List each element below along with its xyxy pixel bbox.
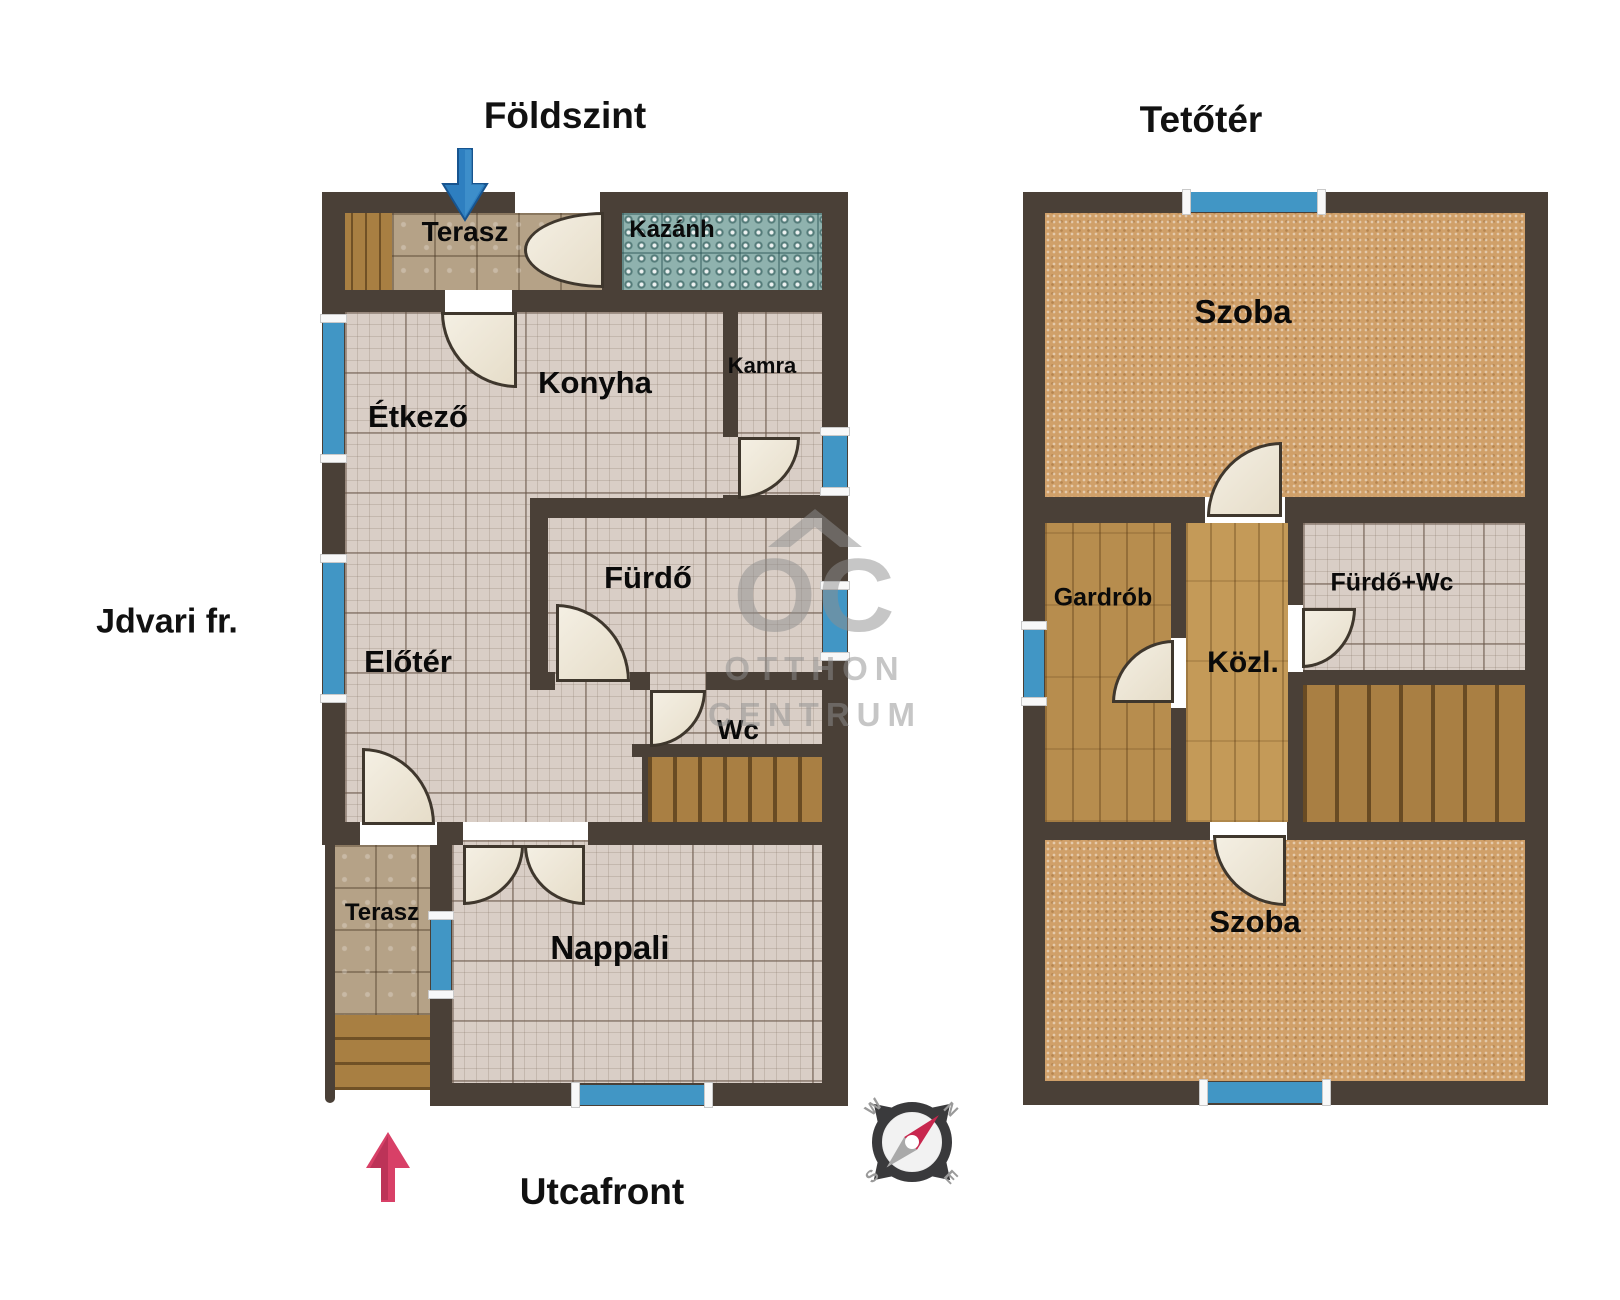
window [823, 433, 847, 490]
ground-staircase [642, 757, 822, 822]
window [1205, 1082, 1325, 1103]
street-front-label: Utcafront [520, 1171, 684, 1213]
wall [437, 822, 463, 845]
room-label-gardrob: Gardrób [1054, 584, 1153, 613]
room-label-nappali: Nappali [550, 929, 669, 967]
attic-room-top-floor [1045, 213, 1525, 497]
wall [1285, 497, 1525, 523]
window [1024, 627, 1044, 700]
ground-floor-title: Földszint [484, 95, 646, 137]
room-label-kamra: Kamra [728, 353, 796, 379]
wall [530, 672, 555, 690]
wall [322, 290, 445, 312]
room-label-kozl: Közl. [1207, 646, 1279, 680]
attic-title: Tetőtér [1140, 99, 1263, 141]
wall [530, 498, 548, 690]
room-label-konyha: Konyha [538, 365, 652, 401]
ground-terrace-bottom-floor [333, 845, 430, 1015]
window [1188, 192, 1320, 212]
wall [1171, 523, 1186, 638]
room-label-terasz-bottom: Terasz [345, 899, 419, 927]
wall [1171, 708, 1186, 822]
compass-rose: W N S E [852, 1082, 972, 1202]
attic-staircase [1303, 685, 1525, 822]
room-label-eloter: Előtér [364, 644, 452, 680]
wall [706, 672, 822, 690]
wall [1045, 822, 1210, 840]
room-label-etkezo: Étkező [368, 399, 468, 435]
wall [600, 192, 848, 213]
window [431, 917, 451, 993]
room-label-wc: Wc [717, 714, 759, 746]
room-label-furdo: Fürdő [604, 560, 692, 596]
wall [1045, 497, 1205, 523]
wall [588, 822, 822, 845]
street-arrow-icon [364, 1132, 412, 1204]
entrance-arrow-icon [441, 148, 491, 222]
room-label-szoba-bottom: Szoba [1209, 904, 1300, 940]
wall [630, 672, 650, 690]
window [323, 320, 344, 457]
courtyard-front-label: Jdvari fr. [96, 603, 238, 642]
wall [530, 498, 822, 518]
window [577, 1085, 707, 1105]
wall [1525, 192, 1548, 1105]
room-label-szoba-top: Szoba [1194, 293, 1291, 331]
room-label-kazanh: Kazánh [629, 216, 714, 244]
wall [1287, 822, 1525, 840]
floor-plan-canvas: Földszint Tetőtér Jdvari fr. Utcafront T… [0, 0, 1620, 1300]
window [323, 560, 344, 697]
wall [1288, 672, 1303, 822]
window [823, 587, 847, 655]
ground-terrace-bottom-deck [333, 1015, 430, 1090]
wall [1288, 523, 1303, 605]
wall [322, 822, 360, 845]
wall [325, 845, 335, 1103]
room-label-furdo-wc: Fürdő+Wc [1331, 569, 1454, 598]
wall [512, 290, 822, 312]
ground-terrace-top-deck [337, 213, 392, 290]
wall [1303, 670, 1525, 685]
